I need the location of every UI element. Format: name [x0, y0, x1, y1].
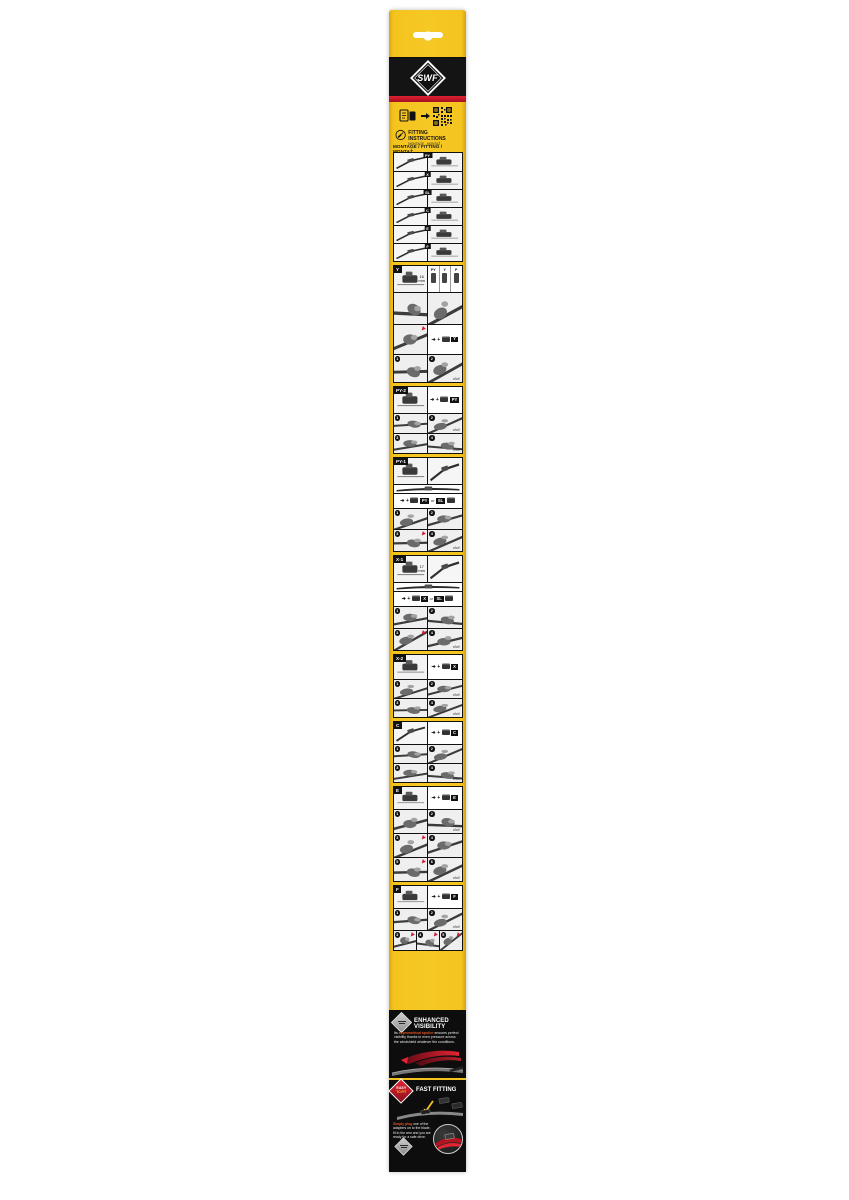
adapter-closeup-inset — [433, 1124, 463, 1154]
adapter-code: PY — [450, 397, 460, 403]
adapter-closeup-graphic — [434, 1125, 462, 1153]
click-label: click! — [453, 828, 460, 832]
enhanced-visibility-text: Its asymmetrical spoiler ensures perfect… — [394, 1031, 461, 1044]
instruction-panel: 2click! — [427, 810, 462, 833]
arrow-icon: ➔ — [432, 337, 436, 343]
step-number: 4 — [429, 765, 435, 771]
arm-type-label: C — [424, 208, 431, 213]
adapter-icon — [442, 796, 450, 800]
fitting-section: ➔+X 1 2click! 3 4click!X-2 — [393, 654, 463, 718]
fitting-row: 1 2 — [394, 508, 462, 529]
swf-diamond-logo: SWF — [410, 60, 446, 96]
adapter-formula: ➔+X — [428, 655, 462, 679]
instruction-panel: 4click! — [427, 530, 462, 551]
instruction-panel: 1 — [394, 355, 428, 382]
instruction-panel — [427, 293, 462, 324]
step-number: 1 — [395, 356, 401, 362]
adapter-formula: ➔+XorSL — [394, 592, 462, 606]
section-label: X-2 — [394, 655, 406, 662]
arm-type-label: E — [424, 226, 431, 231]
adapter-silhouette — [431, 273, 436, 283]
step-number: 1 — [395, 608, 401, 614]
adapter-comparison: PYYP — [428, 266, 462, 292]
adapter-icon — [410, 499, 418, 503]
step-number: 3 — [395, 435, 401, 441]
instruction-panel: 3 — [394, 530, 428, 551]
fitting-section: ➔+F 1 2click! 3 4 5F — [393, 885, 463, 951]
click-label: click! — [453, 377, 460, 381]
step-number: 3 — [395, 531, 401, 537]
instruction-panel: 2click! — [427, 414, 462, 433]
section-label: F — [394, 886, 402, 893]
click-label: click! — [453, 546, 460, 550]
overview-row: E — [394, 225, 462, 243]
instruction-panel: 4click! — [427, 434, 462, 453]
arrow-icon: ➔ — [432, 664, 436, 670]
instruction-panel: 1 — [394, 414, 428, 433]
adapter-formula: ➔+PY — [428, 387, 462, 413]
brand-wordmark: SWF — [410, 73, 446, 83]
product-package: SWF — [389, 10, 466, 1172]
fitting-row — [394, 484, 462, 493]
step-number: 1 — [395, 746, 401, 752]
fitting-row: 3 4click! — [394, 763, 462, 782]
step-number: 4 — [429, 835, 435, 841]
instruction-panel: 2click! — [427, 909, 462, 930]
click-label: click! — [453, 712, 460, 716]
fitting-row: 1 2 — [394, 606, 462, 628]
instruction-panel — [427, 556, 462, 582]
instruction-panel — [427, 244, 462, 261]
comparison-column: Y — [439, 266, 451, 292]
step-number: 4 — [429, 531, 435, 537]
instruction-panel: 4 — [427, 834, 462, 857]
overview-row: F — [394, 243, 462, 261]
fitting-row: 16 mmPYYP — [394, 266, 462, 292]
bottom-marketing-section: ENHANCED VISIBILITY Its asymmetrical spo… — [389, 1010, 466, 1172]
fitting-row: 1 2click! — [394, 679, 462, 698]
adapter-icon — [442, 731, 450, 735]
click-label: click! — [453, 925, 460, 929]
enhanced-visibility-title: ENHANCED VISIBILITY — [414, 1018, 466, 1030]
step-number: 1 — [395, 415, 401, 421]
arm-type-label: SL — [423, 190, 432, 195]
adapter-icon — [445, 597, 453, 601]
fitting-row: ➔+F — [394, 886, 462, 908]
instruction-panel: ➔+E — [427, 787, 462, 809]
instruction-panel: 5 — [439, 931, 462, 950]
step-number: 2 — [429, 510, 435, 516]
step-number: 3 — [395, 630, 401, 636]
overview-row: SL — [394, 189, 462, 207]
instruction-panel: PYYP — [427, 266, 462, 292]
fitting-row: ➔+C — [394, 722, 462, 744]
fitting-row: 1 2click! — [394, 413, 462, 433]
instruction-panel — [394, 244, 428, 261]
adapter-code: PY — [420, 498, 430, 504]
fitting-row: ➔+Y — [394, 324, 462, 354]
instruction-panel — [427, 153, 462, 171]
badge-to-fit: TO FIT — [396, 1091, 406, 1094]
instruction-panel: 3 — [394, 764, 428, 782]
instruction-panel — [394, 325, 428, 354]
plus-sign: + — [437, 894, 440, 900]
step-number: 2 — [429, 746, 435, 752]
section-label: Y — [394, 266, 402, 273]
adapter-code: C — [451, 730, 458, 736]
step-number: 4 — [429, 435, 435, 441]
fitting-instructions-title: FITTING INSTRUCTIONS — [408, 131, 463, 143]
instruction-panel: 3 — [394, 834, 428, 857]
small-technology-badge-icon — [394, 1137, 412, 1155]
step-number: 5 — [395, 859, 401, 865]
adapter-formula: ➔+PYorSL — [394, 494, 462, 508]
section-label: X-1 — [394, 556, 406, 563]
fitting-section: ➔+E 1 2click! 3 4 5 6click!E — [393, 786, 463, 882]
step-number: 3 — [395, 765, 401, 771]
arrow-icon: ➔ — [430, 397, 434, 403]
adapter-code: Y — [451, 337, 458, 343]
instruction-panel: ➔+F — [427, 886, 462, 908]
instruction-panel: ➔+X — [427, 655, 462, 679]
adapter-icon — [442, 895, 450, 899]
click-label: click! — [453, 777, 460, 781]
instruction-panel — [394, 293, 428, 324]
fitting-row — [394, 292, 462, 324]
adapter-code: X — [451, 664, 458, 670]
click-label: click! — [453, 448, 460, 452]
instruction-panel: ➔+Y — [427, 325, 462, 354]
instruction-panel: 6click! — [427, 858, 462, 881]
instruction-panel — [394, 226, 428, 243]
instruction-panel — [427, 172, 462, 189]
instruction-panel: 4 — [416, 931, 439, 950]
step-number: 2 — [429, 811, 435, 817]
step-number: 2 — [429, 910, 435, 916]
instruction-panel: 4click! — [427, 699, 462, 717]
step-number: 1 — [395, 510, 401, 516]
arm-type-label: X — [424, 172, 431, 177]
fitting-row: ➔+PYorSL — [394, 493, 462, 508]
click-label: click! — [453, 428, 460, 432]
instruction-panel — [427, 190, 462, 207]
comparison-label: PY — [431, 268, 436, 272]
adapter-fitting-image — [395, 1096, 466, 1122]
fast-fitting-text: Simply plug one of the adapters on to th… — [393, 1122, 431, 1140]
instruction-panel — [394, 172, 428, 189]
fitting-section: ➔+C 1 2 3 4click!C — [393, 721, 463, 783]
step-number: 4 — [429, 630, 435, 636]
click-label: click! — [453, 645, 460, 649]
instruction-panel: 2 — [427, 745, 462, 763]
fast-fitting-section: EASYTO FIT FAST FITTING Simply plug one … — [389, 1080, 466, 1155]
arrow-icon: ➔ — [432, 894, 436, 900]
plus-sign: + — [406, 498, 409, 504]
section-label: E — [394, 787, 402, 794]
instruction-panel: 2click! — [427, 680, 462, 698]
red-stripe — [389, 96, 466, 102]
step-number: 1 — [395, 910, 401, 916]
instruction-column: PY X SL C E — [393, 152, 463, 954]
arrow-icon: ➔ — [432, 795, 436, 801]
adapter-code-alt: SL — [434, 596, 443, 602]
instruction-panel: 3 — [394, 699, 428, 717]
adapter-icon — [447, 499, 455, 503]
comparison-column: PY — [428, 266, 439, 292]
comparison-column: P — [450, 266, 462, 292]
adapter-code: X — [421, 596, 428, 602]
plus-sign: + — [437, 795, 440, 801]
adapter-formula: ➔+F — [428, 886, 462, 908]
measurement-label: 17 mm — [418, 565, 425, 573]
instruction-panel: 4click! — [427, 764, 462, 782]
step-number: 3 — [395, 835, 401, 841]
fitting-section: ➔+PY 1 2click! 3 4click!PY-2 — [393, 386, 463, 454]
adapter-icon — [440, 398, 448, 402]
instruction-panel: 3 — [394, 629, 428, 650]
instruction-panel: 3 — [394, 434, 428, 453]
arrow-icon: ➔ — [400, 498, 404, 504]
arm-type-label: PY — [423, 153, 432, 158]
instruction-panel: ➔+PYorSL — [394, 494, 462, 508]
step-number: 4 — [429, 700, 435, 706]
section-label: C — [394, 722, 402, 729]
fitting-row: 1 2click! — [394, 809, 462, 833]
instruction-panel: 2 — [427, 607, 462, 628]
section-label: PY-2 — [394, 387, 409, 394]
step-number: 2 — [429, 608, 435, 614]
adapter-formula: ➔+Y — [428, 325, 462, 354]
fitting-section: 16 mmPYYP ➔+Y 1 2click!Y — [393, 265, 463, 383]
adapter-icon — [442, 665, 450, 669]
or-label: or — [430, 597, 433, 601]
fitting-row: 5 6click! — [394, 857, 462, 881]
adapter-icon — [412, 597, 420, 601]
instruction-panel: 2 — [427, 509, 462, 529]
adapter-formula: ➔+C — [428, 722, 462, 744]
fitting-row: 3 4click! — [394, 628, 462, 650]
adapter-silhouette — [454, 273, 459, 283]
plus-sign: + — [407, 596, 410, 602]
fitting-row: ➔+E — [394, 787, 462, 809]
adapter-icon — [442, 338, 450, 342]
instruction-panel: ➔+PY — [427, 387, 462, 413]
step-number: 2 — [429, 356, 435, 362]
wiper-blade-pressure-image — [389, 1046, 466, 1078]
instruction-panel — [427, 226, 462, 243]
qr-row — [399, 105, 459, 127]
step-number: 5 — [441, 932, 447, 938]
instruction-panel — [427, 458, 462, 484]
step-number: 4 — [418, 932, 424, 938]
fitting-row: 1 2click! — [394, 354, 462, 382]
instruction-panel: 4click! — [427, 629, 462, 650]
adapter-code: E — [451, 795, 458, 801]
click-label: click! — [453, 693, 460, 697]
instruction-panel — [427, 208, 462, 225]
instruction-panel: 2click! — [427, 355, 462, 382]
fitting-row: 3 4click! — [394, 698, 462, 717]
fast-fitting-title: FAST FITTING — [416, 1087, 456, 1093]
section-label: PY-1 — [394, 458, 409, 465]
arrow-icon — [421, 112, 430, 120]
instruction-panel: ➔+C — [427, 722, 462, 744]
adapter-formula: ➔+E — [428, 787, 462, 809]
plus-sign: + — [437, 730, 440, 736]
instruction-panel: 1 — [394, 680, 428, 698]
arm-type-label: F — [424, 244, 430, 249]
overview-row: C — [394, 207, 462, 225]
measurement-label: 16 mm — [418, 275, 425, 283]
instruction-panel: 5 — [394, 858, 428, 881]
click-label: click! — [453, 876, 460, 880]
plus-sign: + — [436, 397, 439, 403]
fitting-row: 3 4 — [394, 833, 462, 857]
instruction-panel — [394, 485, 462, 493]
instruction-panel: 1 — [394, 509, 428, 529]
fitting-row: 3 4click! — [394, 433, 462, 453]
step-number: 1 — [395, 681, 401, 687]
instruction-panel — [394, 583, 462, 591]
step-number: 2 — [429, 681, 435, 687]
overview-block: PY X SL C E — [393, 152, 463, 262]
fitting-row: 1 2 — [394, 744, 462, 763]
instruction-panel: 1 — [394, 745, 428, 763]
instruction-panel: 1 — [394, 909, 428, 930]
or-label: or — [431, 499, 434, 503]
comparison-label: Y — [444, 268, 446, 272]
arrow-icon: ➔ — [402, 596, 406, 602]
fitting-row: 3 4click! — [394, 529, 462, 551]
step-number: 2 — [429, 415, 435, 421]
fitting-row: 3 4 5 — [394, 930, 462, 950]
step-number: 3 — [395, 700, 401, 706]
arrow-icon: ➔ — [431, 730, 435, 736]
overview-row: X — [394, 171, 462, 189]
comparison-label: P — [455, 268, 457, 272]
overview-row: PY — [394, 153, 462, 171]
adapter-code: F — [451, 894, 458, 900]
ff-highlight: Simply plug — [393, 1122, 412, 1126]
instruction-panel — [394, 190, 428, 207]
plus-sign: + — [437, 664, 440, 670]
fitting-section: 17 mm ➔+XorSL 1 2 3 4click!X-1 — [393, 555, 463, 651]
adapter-code-alt: SL — [436, 498, 445, 504]
adapter-silhouette — [442, 273, 447, 283]
step-number: 1 — [395, 811, 401, 817]
instruction-panel: ➔+XorSL — [394, 592, 462, 606]
plus-sign: + — [437, 337, 440, 343]
step-number: 6 — [429, 859, 435, 865]
fitting-row: ➔+XorSL — [394, 591, 462, 606]
screwdriver-icon — [395, 129, 406, 141]
step-number: 3 — [395, 932, 401, 938]
fitting-row — [394, 582, 462, 591]
fitting-row: 1 2click! — [394, 908, 462, 930]
technology-badge-icon — [391, 1012, 412, 1033]
euro-slot-hole — [411, 27, 445, 43]
qr-code — [432, 106, 453, 127]
instruction-panel: 1 — [394, 810, 428, 833]
manual-booklet-icon — [399, 107, 419, 125]
instruction-panel — [394, 208, 428, 225]
hang-tab — [389, 10, 466, 57]
instruction-panel: 1 — [394, 607, 428, 628]
fitting-section: ➔+PYorSL 1 2 3 4click!PY-1 — [393, 457, 463, 552]
instruction-panel: 3 — [394, 931, 416, 950]
